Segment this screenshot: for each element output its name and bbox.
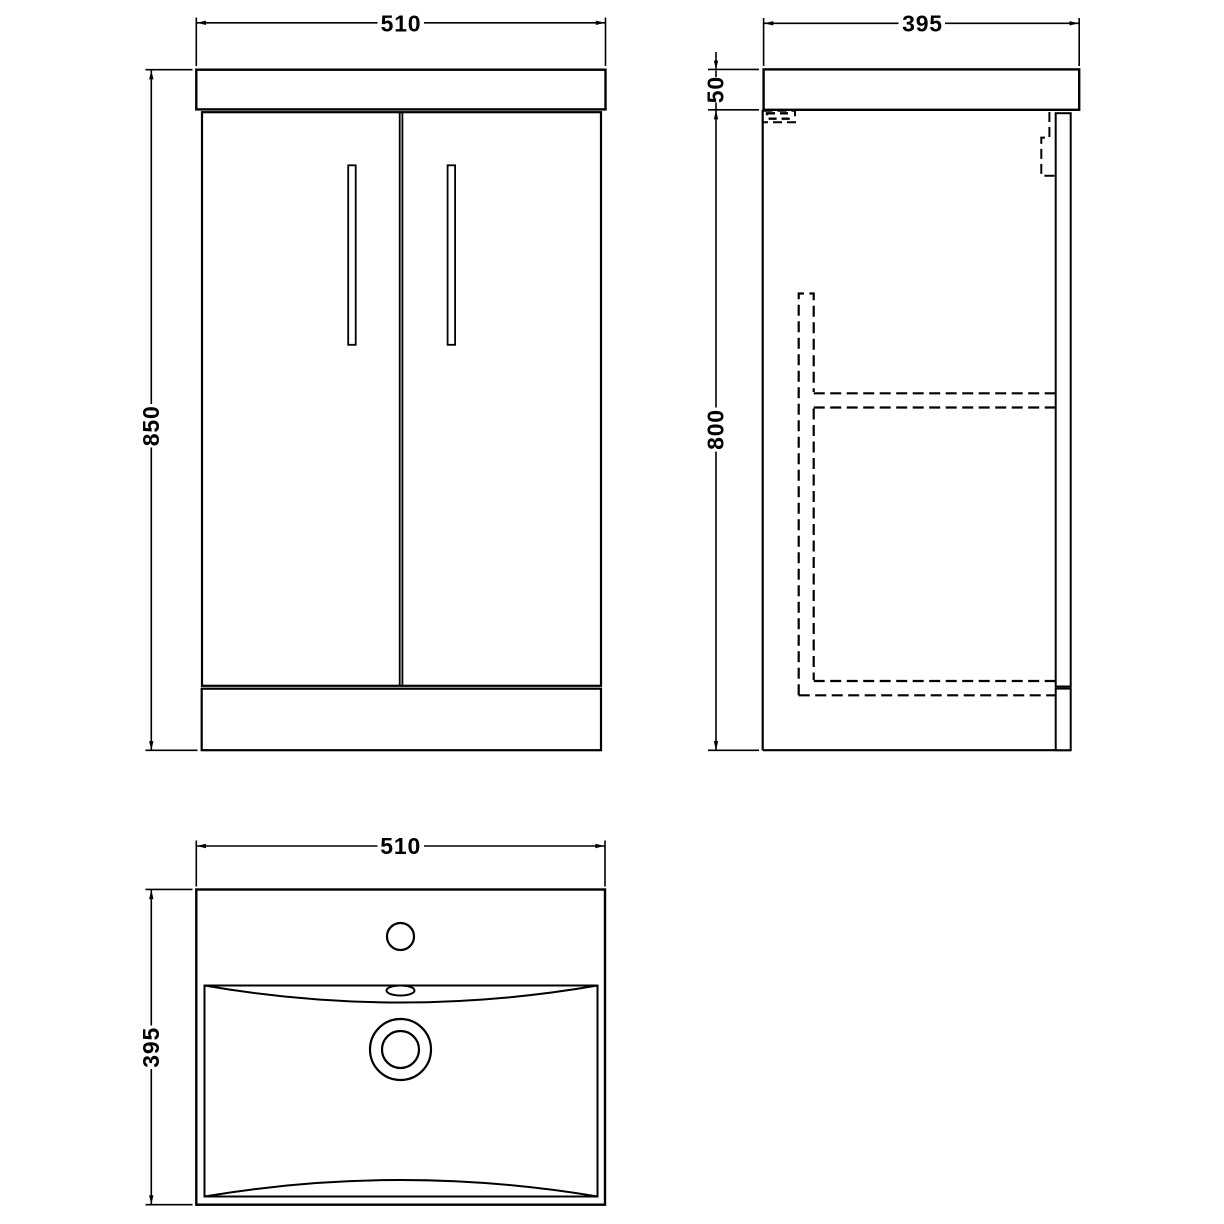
svg-text:510: 510 [381,10,422,36]
svg-text:850: 850 [138,405,164,446]
svg-text:395: 395 [902,11,943,37]
svg-text:510: 510 [380,833,421,859]
svg-text:800: 800 [702,409,728,450]
svg-text:50: 50 [702,76,728,103]
svg-text:395: 395 [138,1027,164,1068]
